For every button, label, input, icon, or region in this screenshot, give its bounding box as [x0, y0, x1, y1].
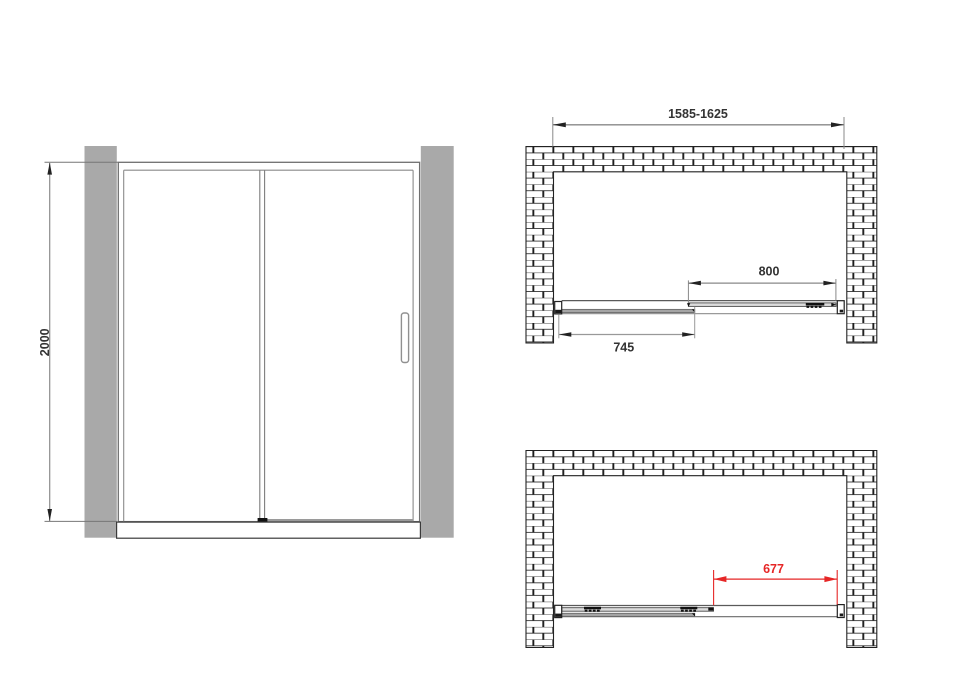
- svg-text:745: 745: [613, 340, 634, 354]
- svg-text:677: 677: [763, 562, 784, 576]
- svg-text:1585-1625: 1585-1625: [668, 107, 728, 121]
- svg-text:2000: 2000: [38, 328, 52, 356]
- svg-text:800: 800: [759, 265, 780, 279]
